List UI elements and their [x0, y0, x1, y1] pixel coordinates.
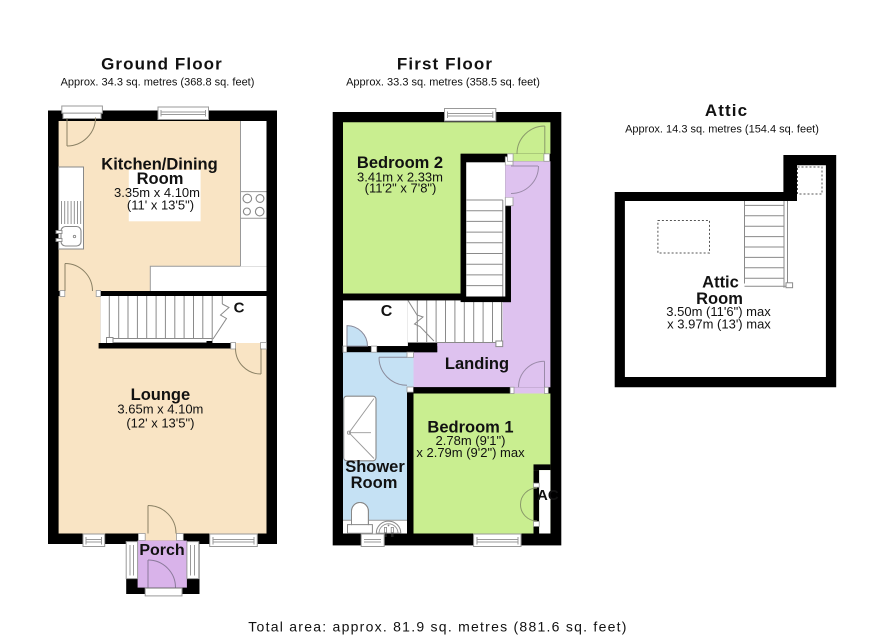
svg-text:Approx. 14.3 sq. metres (154.4: Approx. 14.3 sq. metres (154.4 sq. feet) — [625, 124, 819, 136]
svg-text:(11'2" x 7'8"): (11'2" x 7'8") — [365, 180, 437, 195]
svg-text:Attic: Attic — [702, 274, 739, 292]
svg-text:x 2.79m (9'2") max: x 2.79m (9'2") max — [416, 445, 525, 460]
svg-text:(12' x 13'5"): (12' x 13'5") — [126, 415, 194, 430]
svg-text:C: C — [381, 303, 393, 320]
svg-text:Attic: Attic — [705, 101, 748, 120]
svg-text:x 3.97m (13') max: x 3.97m (13') max — [667, 317, 771, 332]
svg-text:Approx. 33.3 sq. metres (358.5: Approx. 33.3 sq. metres (358.5 sq. feet) — [346, 77, 540, 89]
svg-text:C: C — [234, 299, 245, 316]
svg-text:AC: AC — [537, 487, 559, 504]
svg-text:Room: Room — [351, 474, 398, 492]
svg-text:3.65m x 4.10m: 3.65m x 4.10m — [117, 401, 203, 416]
svg-text:Total area: approx. 81.9 sq. m: Total area: approx. 81.9 sq. metres (881… — [248, 619, 627, 635]
svg-text:(11' x 13'5"): (11' x 13'5") — [127, 197, 194, 212]
svg-text:Ground Floor: Ground Floor — [101, 55, 223, 74]
svg-text:First Floor: First Floor — [397, 55, 493, 74]
svg-text:Porch: Porch — [139, 542, 184, 559]
svg-text:Landing: Landing — [445, 355, 509, 373]
svg-text:Approx. 34.3 sq. metres (368.8: Approx. 34.3 sq. metres (368.8 sq. feet) — [61, 77, 255, 89]
